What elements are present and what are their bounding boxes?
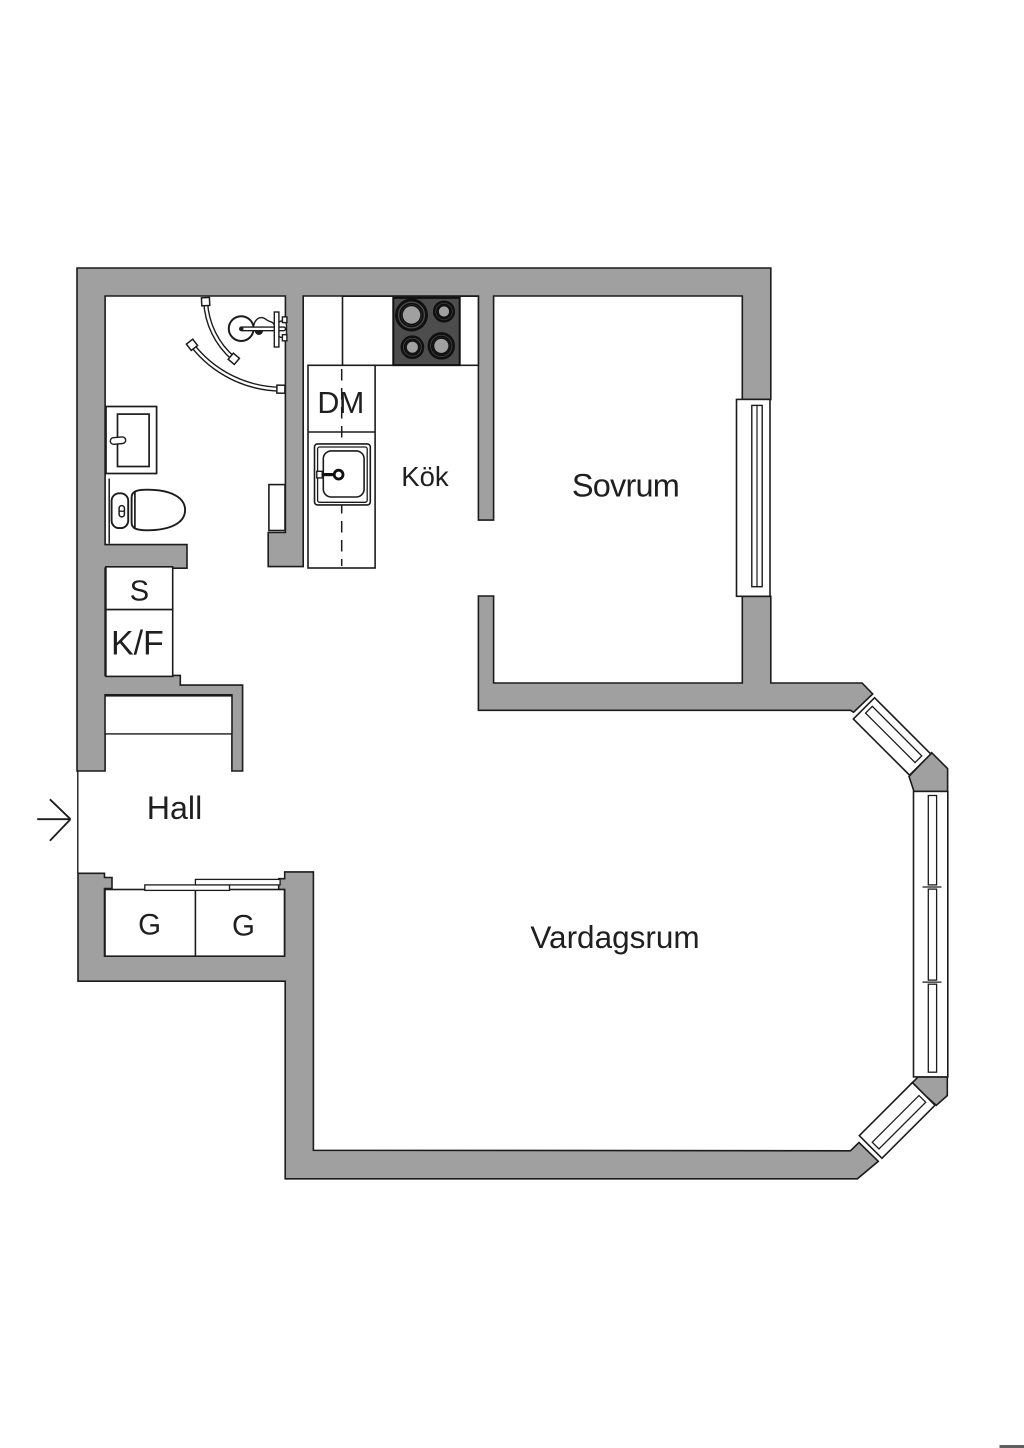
svg-text:G: G	[232, 910, 255, 943]
svg-text:Kök: Kök	[401, 461, 449, 492]
svg-text:S: S	[130, 576, 149, 608]
svg-text:Hall: Hall	[147, 790, 202, 826]
svg-text:K/F: K/F	[111, 625, 164, 663]
svg-text:Vardagsrum: Vardagsrum	[530, 919, 699, 955]
svg-text:G: G	[138, 909, 161, 942]
svg-text:Sovrum: Sovrum	[572, 468, 679, 504]
svg-text:DM: DM	[317, 386, 363, 420]
